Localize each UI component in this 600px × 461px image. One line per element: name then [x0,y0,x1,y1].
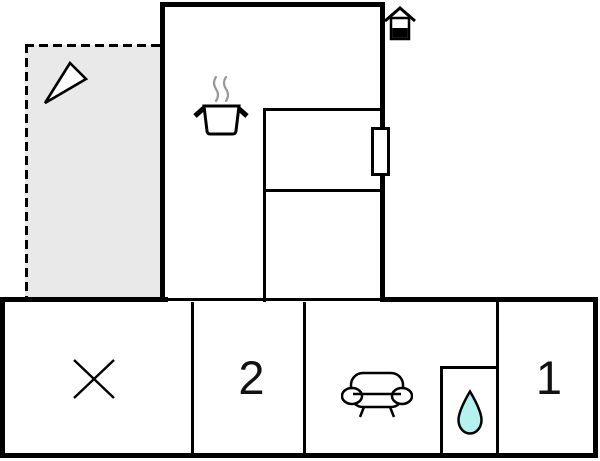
floor-plan-canvas: 2 1 [0,0,600,461]
house-icon [383,5,417,41]
interior-wall [263,108,266,302]
terrace-dashed-border-top [25,44,165,47]
terrace-dashed-border-left [25,44,28,297]
interior-wall [191,302,194,453]
room-number-1: 1 [502,348,596,406]
compass-triangle-icon [42,57,88,105]
window-symbol [371,127,390,176]
exterior-wall [380,297,598,302]
water-drop-icon [455,389,485,436]
sofa-icon [341,369,413,419]
interior-wall [263,108,380,111]
exterior-wall [0,297,168,302]
interior-wall [168,298,380,301]
room-number-2: 2 [196,348,307,406]
interior-wall [496,302,499,453]
cooking-pot-icon [188,73,254,137]
main-building-outline [160,2,385,302]
x-mark-icon [71,357,117,401]
interior-wall [263,189,380,192]
